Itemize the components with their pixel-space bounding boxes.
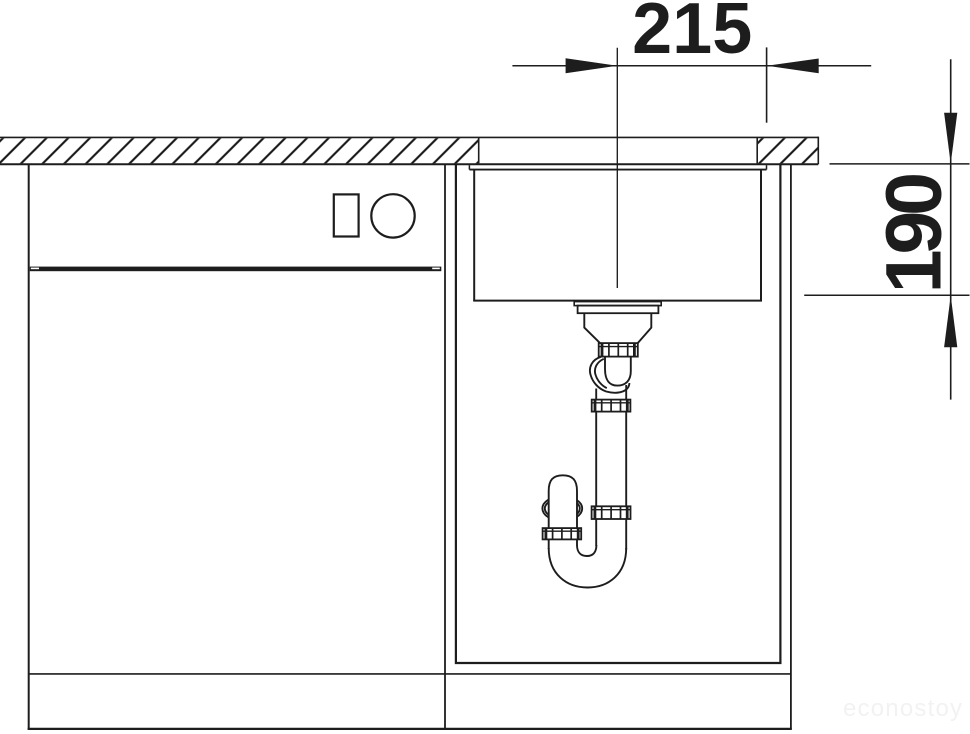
svg-text:190: 190 [869,175,958,293]
svg-text:215: 215 [632,0,752,69]
svg-text:econostoy: econostoy [843,695,963,722]
